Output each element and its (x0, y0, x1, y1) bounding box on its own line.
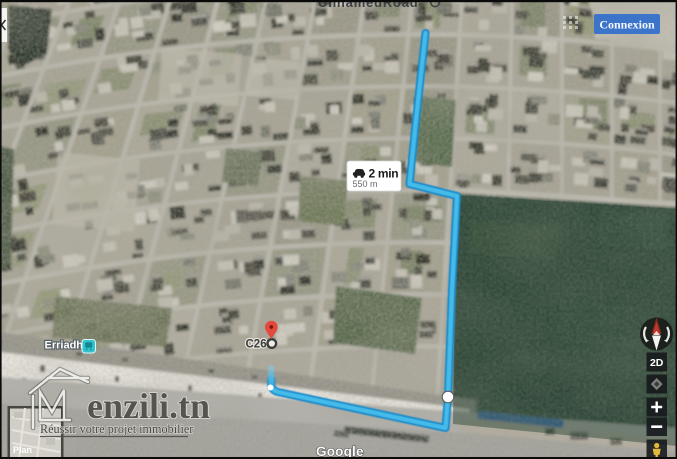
svg-text:enzili.tn: enzili.tn (87, 386, 210, 426)
svg-text:C26: C26 (246, 339, 267, 351)
svg-text:Google: Google (316, 444, 364, 459)
svg-text:Réussir votre projet immobilie: Réussir votre projet immobilier (40, 422, 193, 436)
svg-text:Connexion: Connexion (599, 18, 655, 32)
svg-text:Erriadh: Erriadh (45, 340, 84, 352)
svg-text:550 m: 550 m (353, 179, 378, 189)
svg-text:Plan: Plan (13, 445, 32, 455)
svg-text:2D: 2D (650, 357, 664, 369)
